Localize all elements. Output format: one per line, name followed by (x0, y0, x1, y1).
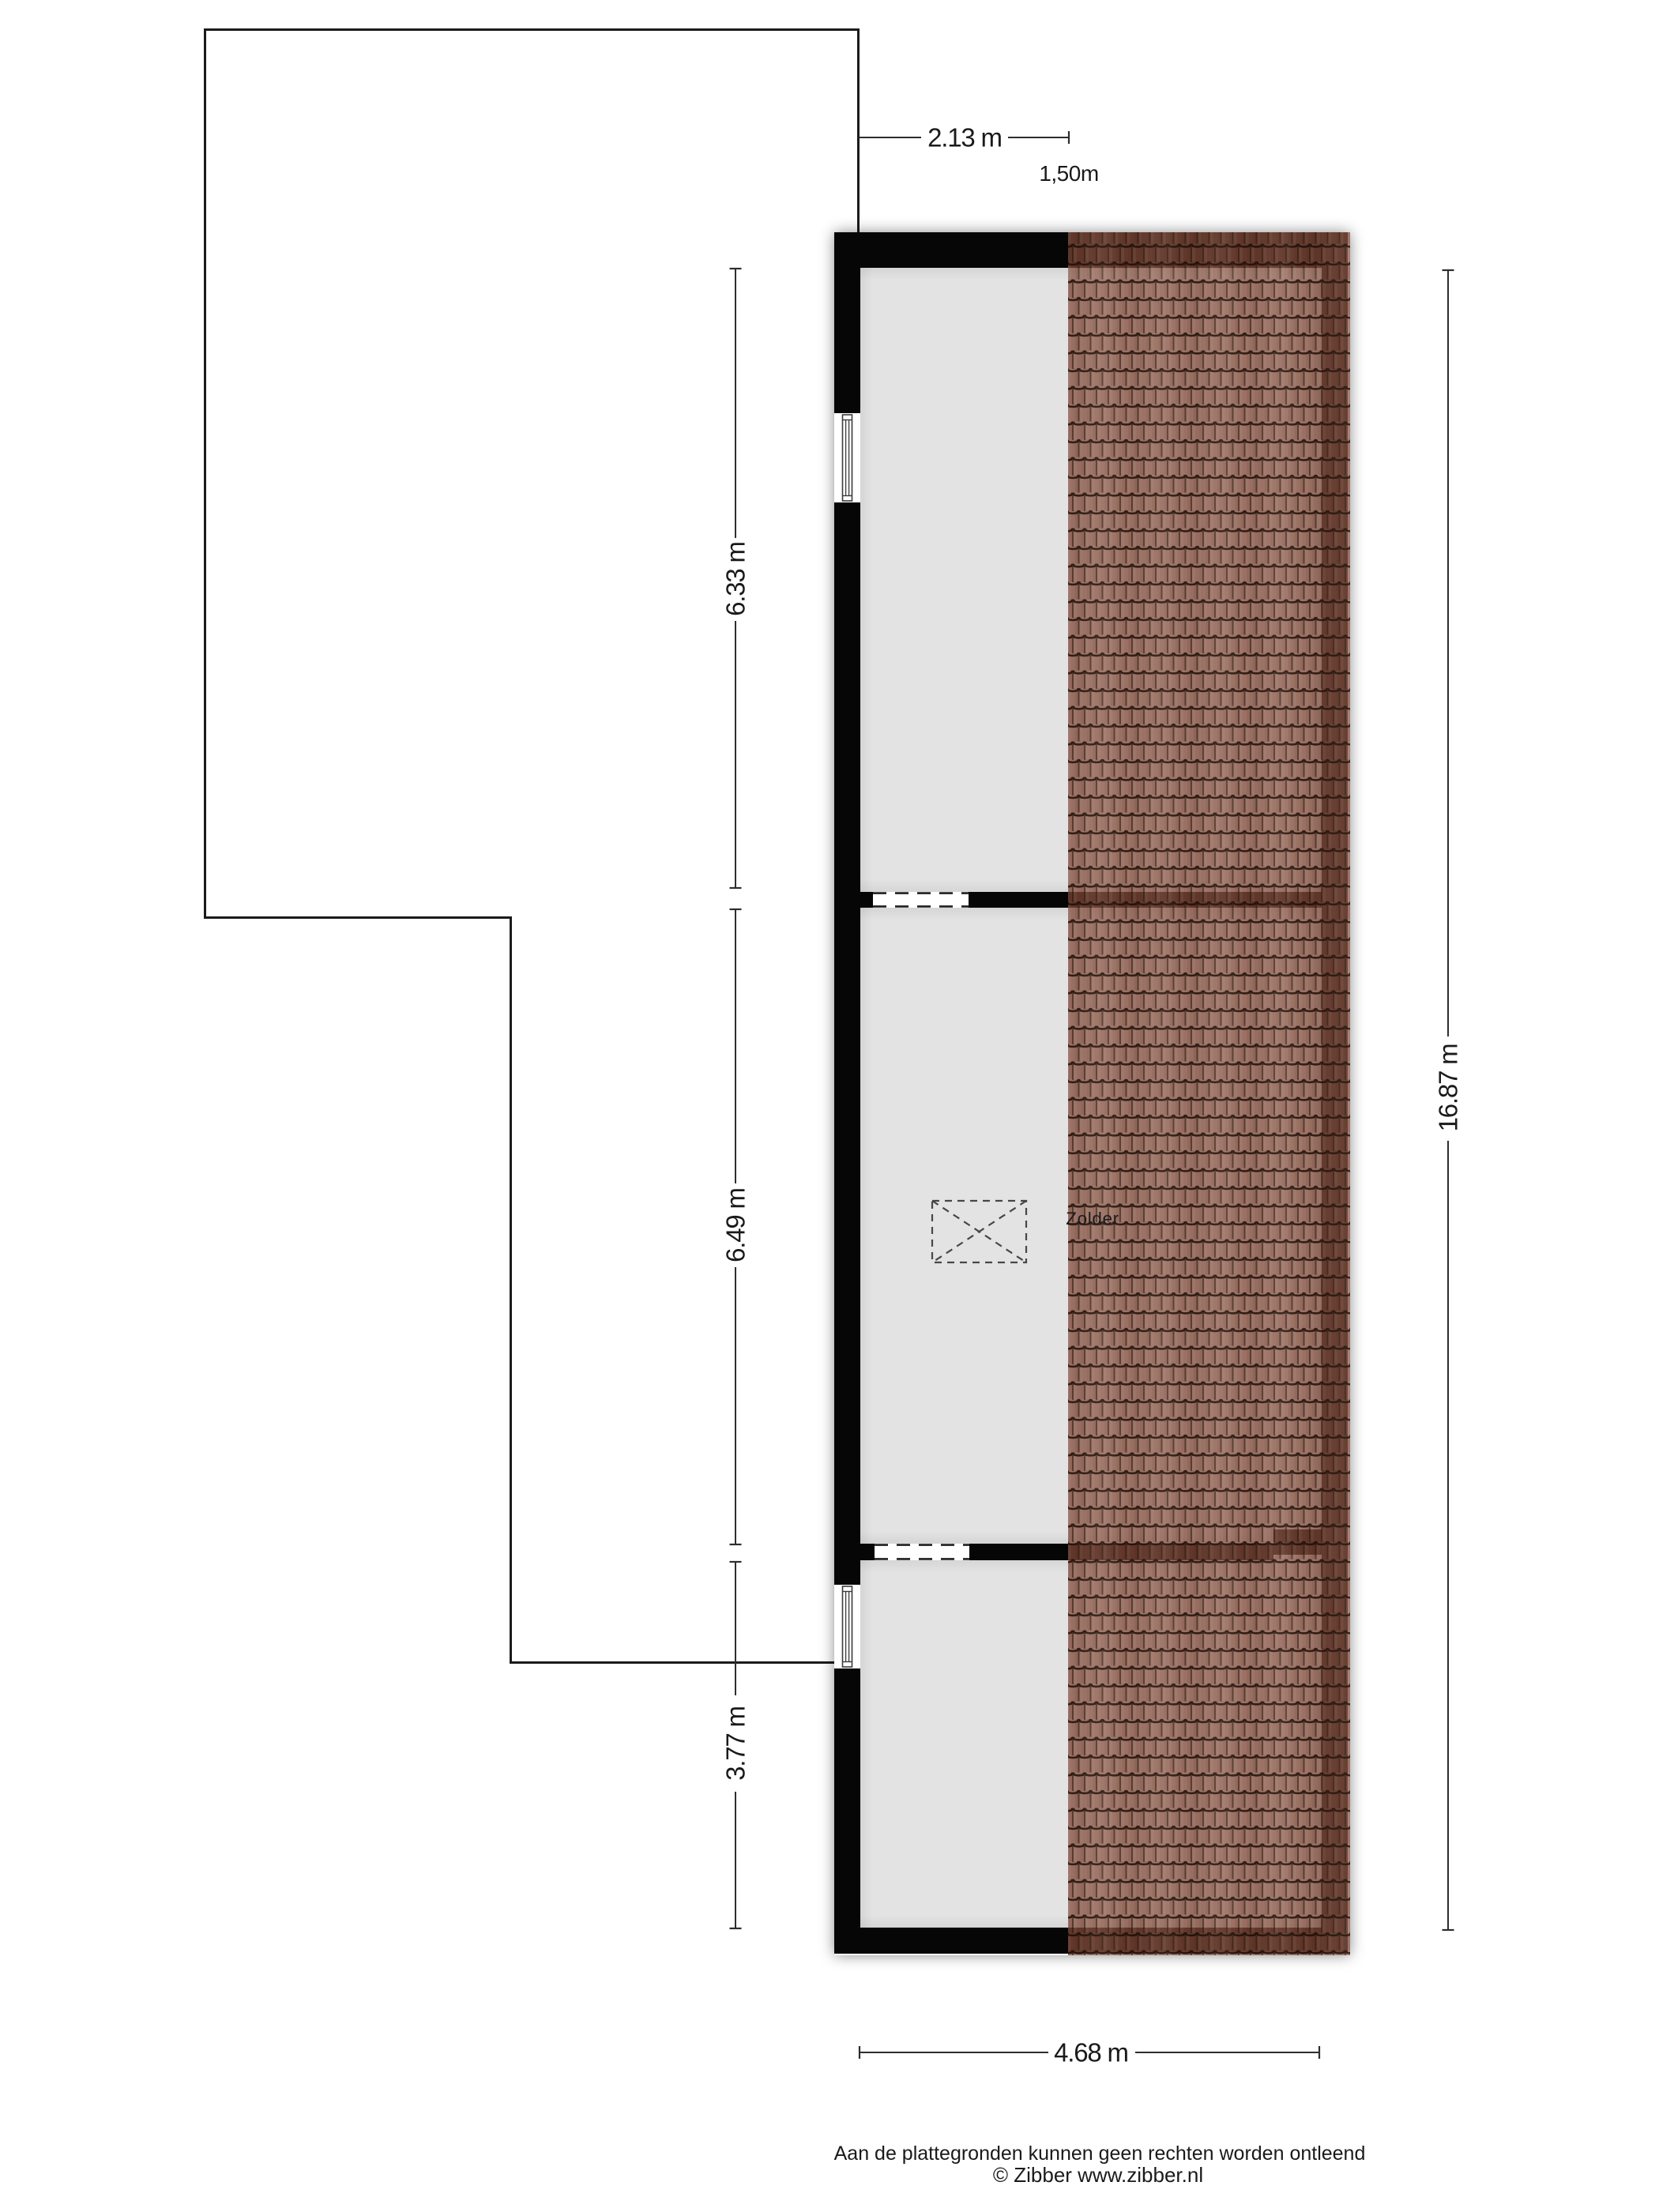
svg-text:Zolder: Zolder (1066, 1209, 1119, 1228)
svg-text:Aan de plattegronden kunnen ge: Aan de plattegronden kunnen geen rechten… (834, 2142, 1366, 2165)
svg-text:1,50m: 1,50m (1039, 161, 1098, 186)
svg-text:6.49 m: 6.49 m (721, 1188, 750, 1262)
svg-text:2.13 m: 2.13 m (927, 123, 1002, 152)
svg-text:3.77 m: 3.77 m (721, 1706, 750, 1781)
svg-text:4.68 m: 4.68 m (1054, 2038, 1128, 2067)
svg-text:16.87 m: 16.87 m (1434, 1044, 1463, 1132)
svg-text:© Zibber www.zibber.nl: © Zibber www.zibber.nl (993, 2163, 1203, 2187)
svg-text:6.33 m: 6.33 m (721, 542, 750, 616)
